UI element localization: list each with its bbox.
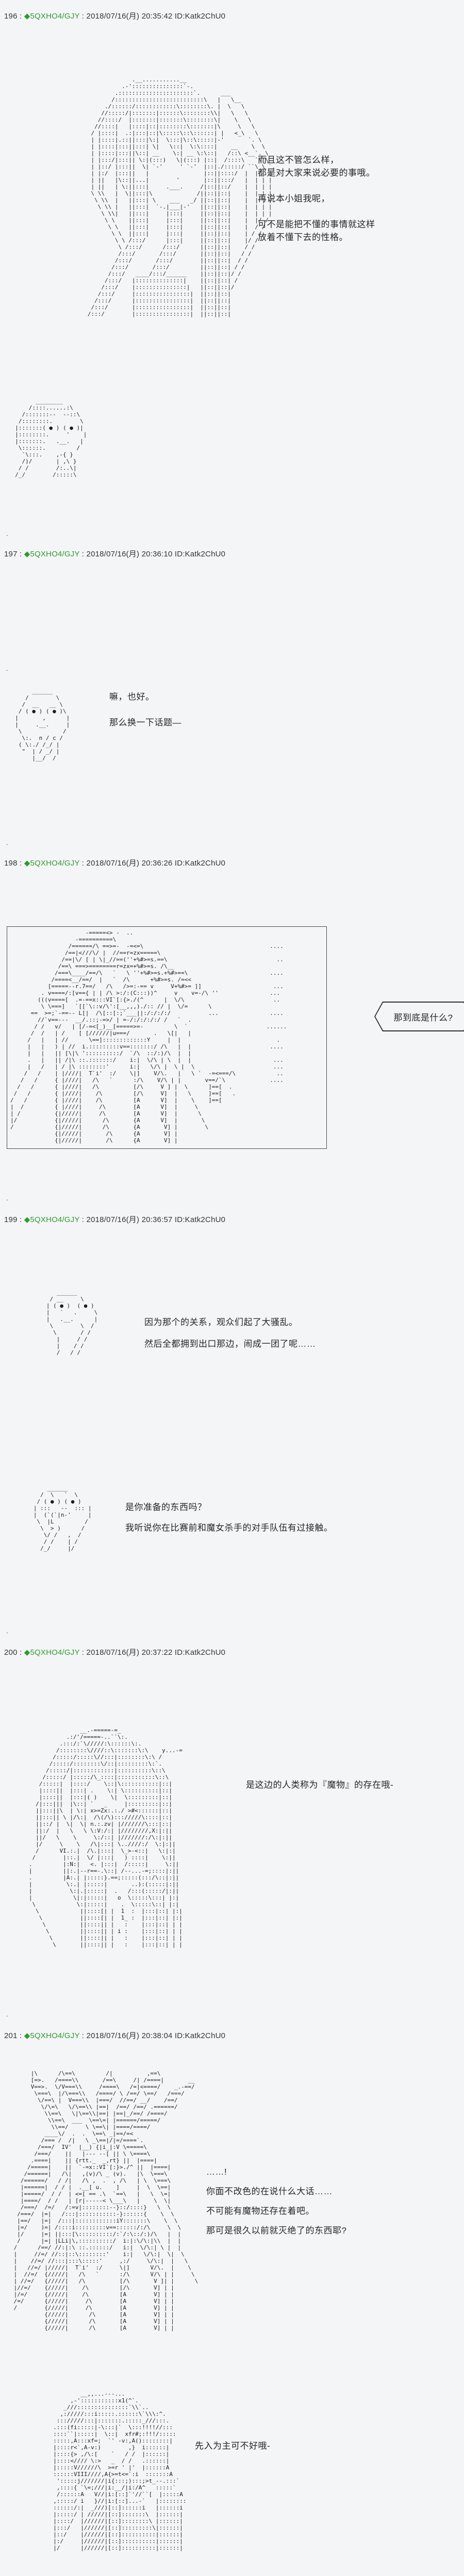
aa-art-longhair: __.-=====-=_ .:/'/=====-..``\:. .:::/:`\… xyxy=(19,1727,183,1948)
dialog-text: 是这边的人类称为『魔物』的存在哦- xyxy=(246,1778,393,1791)
dialog-text: 而且这不管怎么样， 都是对大家来说必要的事哦。 再说本小姐我呢， 可不是能把不懂… xyxy=(258,154,375,244)
separator-dot: . xyxy=(6,530,8,537)
dialog-text: 因为那个的关系，观众们起了大骚乱。 然后全都拥到出口那边，闹成一团了呢…… xyxy=(144,1317,316,1349)
post-meta: : 2018/07/16(月) 20:38:04 ID:Katk2ChU0 xyxy=(82,2031,225,2040)
tripcode: ◆5QXHO4/GJY xyxy=(24,2031,80,2040)
speech-bubble: 那到底是什么? xyxy=(374,1002,464,1031)
aa-art-face: ______ / \ / __ __ \ / ( ● ) ( ● )\ | , … xyxy=(8,688,70,761)
post-meta: : 2018/07/16(月) 20:36:57 ID:Katk2ChU0 xyxy=(82,1215,225,1224)
separator-dot: . xyxy=(6,1627,8,1635)
post-number: 199 : xyxy=(4,1215,22,1224)
tripcode: ◆5QXHO4/GJY xyxy=(24,859,80,868)
post-meta: : 2018/07/16(月) 20:37:22 ID:Katk2ChU0 xyxy=(82,1648,225,1657)
separator-dot: . xyxy=(6,839,8,846)
tripcode: ◆5QXHO4/GJY xyxy=(24,550,80,558)
separator-dot: . xyxy=(6,1194,8,1202)
aa-art-face: ______ / \ ` \ / ( ● ) ( ● ) | ::: -- ::… xyxy=(23,1485,91,1552)
post-number: 197 : xyxy=(4,550,22,558)
post-meta: : 2018/07/16(月) 20:36:26 ID:Katk2ChU0 xyxy=(82,859,225,868)
aa-art-face: ______ / __ \ | ( ● ) ( ● ) | ` . \ | ._… xyxy=(36,1289,97,1356)
dialog-text: ……! 你面不改色的在说什么大话…… 不可能有魔物还存在着吧。 那可是很久以前就… xyxy=(206,2167,346,2235)
post-number: 198 : xyxy=(4,859,22,868)
tripcode: ◆5QXHO4/GJY xyxy=(24,1648,80,1657)
post-header-201: 201 : ◆5QXHO4/GJY : 2018/07/16(月) 20:38:… xyxy=(4,2030,225,2041)
post-header-199: 199 : ◆5QXHO4/GJY : 2018/07/16(月) 20:36:… xyxy=(4,1214,225,1225)
post-number: 200 : xyxy=(4,1648,22,1657)
aa-art-girl-large: .__...........__ .-':::::::::::::::`-. .… xyxy=(77,76,275,317)
aa-art-drill-girl: |\ /\==\ /| ,==\ [=>. /====\\ /==\ /| /=… xyxy=(10,2070,198,2331)
aa-art-longhair-small: __,,...---... ,-':::::::::::x1(^`. _///:… xyxy=(46,2391,187,2551)
separator-dot: . xyxy=(6,665,8,672)
dialog-text: 嘛，也好。 那么换一下话题— xyxy=(109,690,181,729)
post-header-200: 200 : ◆5QXHO4/GJY : 2018/07/16(月) 20:37:… xyxy=(4,1647,225,1657)
aa-frame-box: -=====<> - .. -==========\ /======/\ ==>… xyxy=(7,926,327,1149)
post-number: 201 : xyxy=(4,2031,22,2040)
tripcode: ◆5QXHO4/GJY xyxy=(24,1215,80,1224)
bubble-text: 那到底是什么? xyxy=(374,1002,464,1031)
dialog-text: 是你准备的东西吗？ 我听说你在比赛前和魔女杀手的对手队伍有过接触。 xyxy=(125,1502,333,1533)
post-header-196: 196 : ◆5QXHO4/GJY : 2018/07/16(月) 20:35:… xyxy=(4,10,225,21)
post-meta: : 2018/07/16(月) 20:35:42 ID:Katk2ChU0 xyxy=(82,12,225,21)
aa-art-face: ________ /::::......:\ /:::::::-- --::\ … xyxy=(8,398,87,478)
dialog-text: 先入为主可不好哦- xyxy=(195,2439,270,2452)
post-meta: : 2018/07/16(月) 20:36:10 ID:Katk2ChU0 xyxy=(82,550,225,558)
separator-dot: . xyxy=(6,2010,8,2018)
aa-art-framed: -=====<> - .. -==========\ /======/\ ==>… xyxy=(7,927,326,1146)
tripcode: ◆5QXHO4/GJY xyxy=(24,12,80,21)
comic-page: 196 : ◆5QXHO4/GJY : 2018/07/16(月) 20:35:… xyxy=(0,0,464,2576)
post-header-198: 198 : ◆5QXHO4/GJY : 2018/07/16(月) 20:36:… xyxy=(4,857,225,868)
post-header-197: 197 : ◆5QXHO4/GJY : 2018/07/16(月) 20:36:… xyxy=(4,548,225,559)
post-number: 196 : xyxy=(4,12,22,21)
